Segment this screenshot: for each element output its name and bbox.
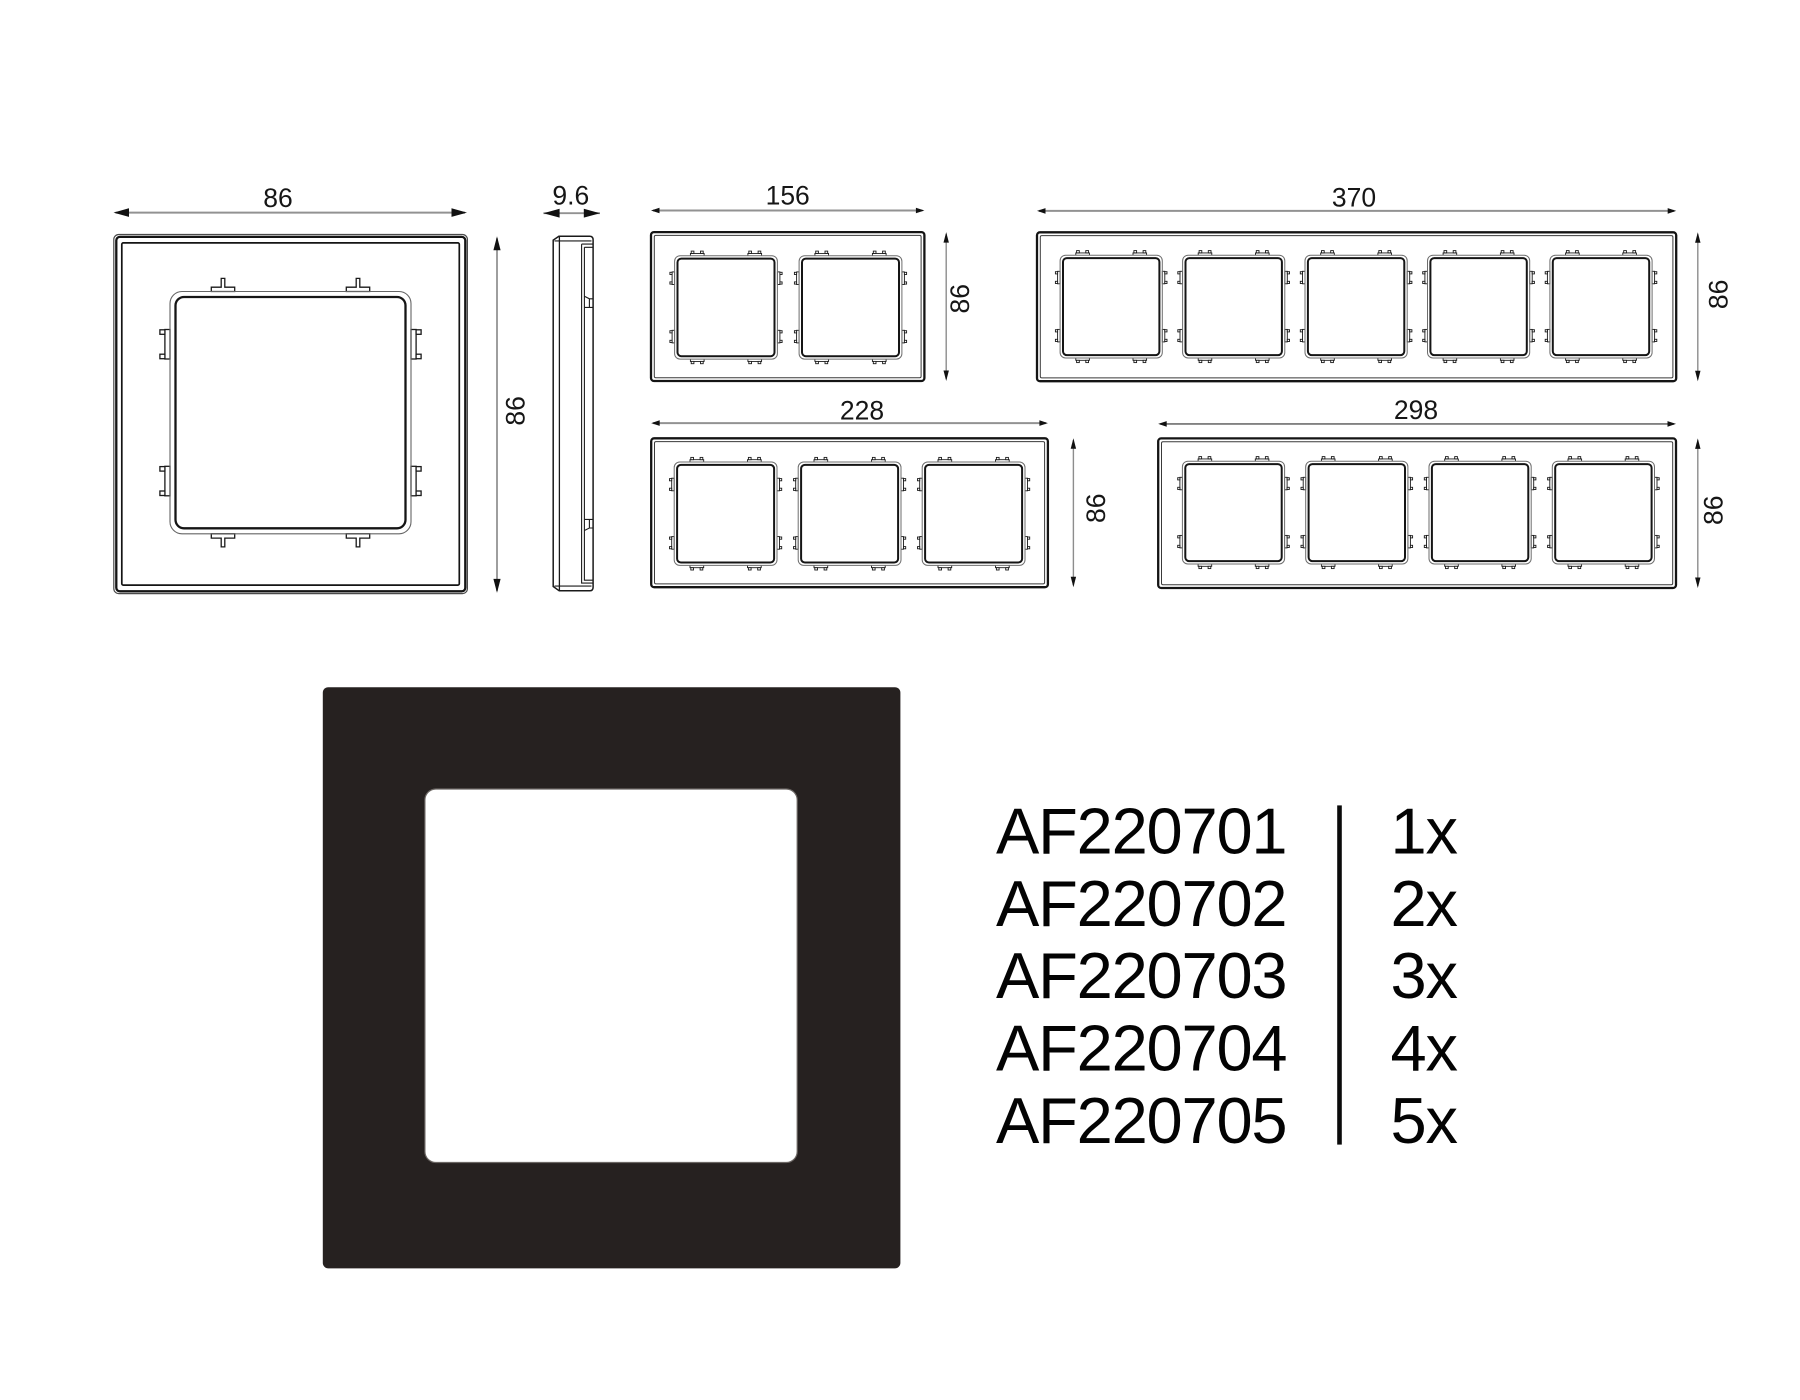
svg-text:3x: 3x [1391, 939, 1458, 1012]
svg-text:AF220701: AF220701 [996, 794, 1286, 867]
svg-text:AF220704: AF220704 [996, 1012, 1286, 1085]
svg-text:86: 86 [945, 284, 975, 313]
svg-text:5x: 5x [1391, 1084, 1458, 1157]
svg-text:86: 86 [263, 183, 292, 213]
svg-text:86: 86 [1698, 496, 1728, 525]
svg-text:AF220702: AF220702 [996, 867, 1286, 940]
svg-text:370: 370 [1332, 183, 1376, 213]
svg-text:86: 86 [1704, 280, 1734, 309]
svg-text:AF220705: AF220705 [996, 1084, 1286, 1157]
svg-text:86: 86 [1081, 494, 1111, 523]
svg-text:2x: 2x [1391, 867, 1458, 940]
svg-text:86: 86 [501, 396, 531, 425]
svg-text:298: 298 [1394, 395, 1438, 425]
svg-text:4x: 4x [1391, 1012, 1458, 1085]
svg-text:AF220703: AF220703 [996, 939, 1286, 1012]
svg-text:228: 228 [840, 395, 884, 425]
svg-text:156: 156 [766, 180, 810, 210]
svg-text:9.6: 9.6 [552, 181, 589, 211]
svg-text:1x: 1x [1391, 794, 1458, 867]
